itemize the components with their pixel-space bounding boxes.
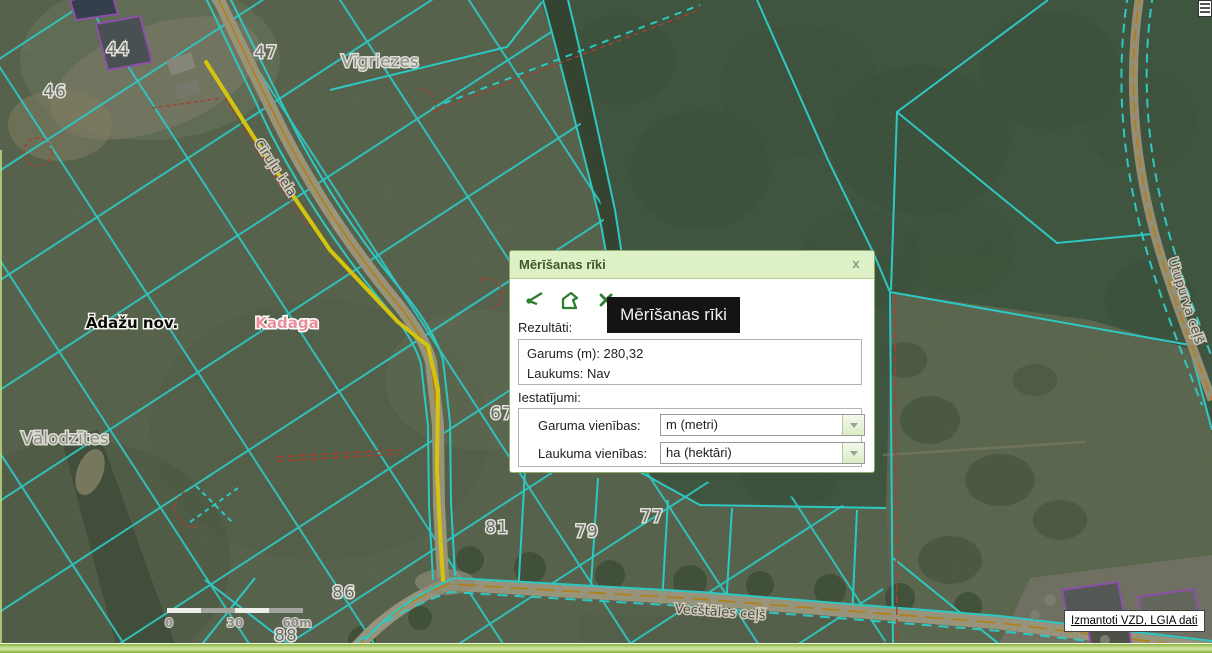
place-label-vigriezes: Vīgriezes [341, 52, 419, 72]
results-box: Garums (m): 280,32 Laukums: Nav [518, 339, 862, 385]
settings-box: Garuma vienības: m (metri) Laukuma vienī… [518, 408, 862, 467]
place-label-kadaga: Kadaga [255, 314, 318, 332]
parcel-number-47: 47 [254, 43, 278, 63]
chevron-down-icon [850, 451, 858, 456]
map-application-window: 44 46 47 67 77 79 81 86 88 Vīgriezes Vāl… [0, 0, 1212, 653]
close-icon[interactable]: x [848, 255, 864, 273]
area-units-select[interactable]: ha (hektāri) [660, 442, 865, 464]
attribution-link[interactable]: Izmantoti VZD, LGIA dati [1064, 610, 1205, 632]
result-length: Garums (m): 280,32 [527, 344, 853, 364]
parcel-number-81: 81 [485, 518, 509, 538]
parcel-number-77: 77 [640, 507, 664, 527]
parcel-number-86: 86 [332, 583, 356, 603]
length-units-label: Garuma vienības: [538, 418, 641, 433]
dialog-title[interactable]: Mērīšanas rīki [510, 251, 874, 279]
place-label-valodzites: Vālodzītes [21, 429, 109, 449]
area-units-label: Laukuma vienības: [538, 446, 647, 461]
settings-section-label: Iestatījumi: [518, 390, 581, 405]
measure-tools-tooltip: Mērīšanas rīki [607, 297, 740, 333]
parcel-number-46: 46 [43, 82, 67, 102]
results-section-label: Rezultāti: [518, 320, 572, 335]
length-units-dropdown-button[interactable] [842, 415, 864, 435]
measure-tools-dialog: Mērīšanas rīki x [509, 250, 875, 473]
measure-line-icon [523, 290, 545, 310]
measure-area-icon [559, 290, 581, 310]
page-edge-strip [0, 150, 2, 653]
area-units-dropdown-button[interactable] [842, 443, 864, 463]
bottom-status-bar [0, 643, 1212, 653]
scale-label-60m: 60m [282, 616, 311, 630]
result-area: Laukums: Nav [527, 364, 853, 384]
length-units-value: m (metri) [666, 415, 718, 435]
map-sheet-icon[interactable] [1198, 0, 1212, 17]
place-label-adazu-nov: Ādažu nov. [86, 312, 178, 332]
length-units-select[interactable]: m (metri) [660, 414, 865, 436]
dialog-toolbar [522, 288, 618, 312]
parcel-number-79: 79 [575, 522, 599, 542]
chevron-down-icon [850, 423, 858, 428]
parcel-number-44: 44 [106, 40, 130, 60]
scale-label-0: 0 [165, 616, 173, 630]
measure-line-button[interactable] [522, 288, 546, 312]
measure-area-button[interactable] [558, 288, 582, 312]
area-units-value: ha (hektāri) [666, 443, 732, 463]
scale-label-30: 30 [227, 616, 244, 630]
